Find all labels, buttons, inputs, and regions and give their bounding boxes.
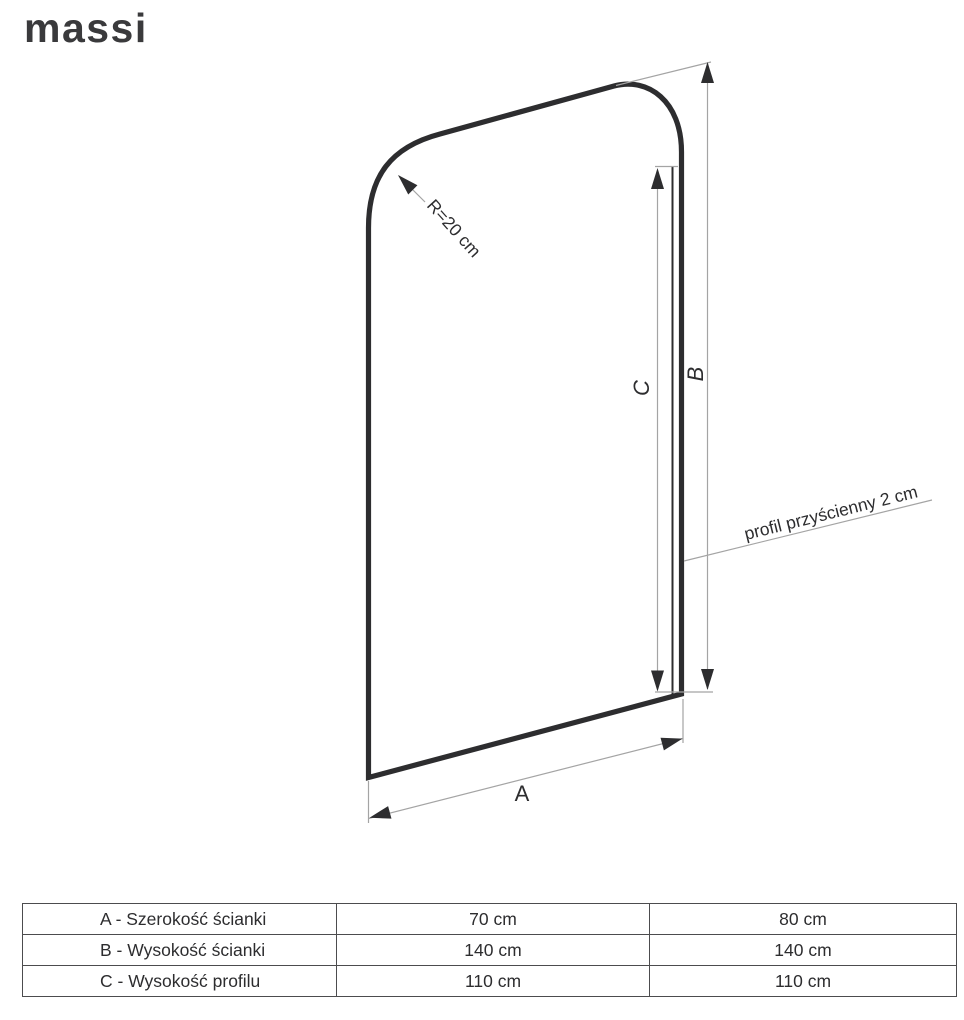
size-value-cell: 80 cm <box>650 904 957 935</box>
dimension-label-cell: C - Wysokość profilu <box>23 966 337 997</box>
dimension-label-cell: B - Wysokość ścianki <box>23 935 337 966</box>
wall-profile-annotation: profil przyścienny 2 cm <box>742 481 920 543</box>
table-row-b: B - Wysokość ścianki 140 cm 140 cm <box>23 935 957 966</box>
size-value-cell: 140 cm <box>650 935 957 966</box>
arrowheads <box>368 62 714 824</box>
dim-line-a <box>369 739 684 819</box>
size-value-cell: 140 cm <box>337 935 650 966</box>
shower-screen-technical-drawing: A B C R=20 cm profil przyścienny 2 cm <box>0 0 964 880</box>
size-value-cell: 70 cm <box>337 904 650 935</box>
dim-label-c: C <box>629 380 654 396</box>
radius-annotation: R=20 cm <box>423 195 485 261</box>
dimension-label-cell: A - Szerokość ścianki <box>23 904 337 935</box>
ext-line-b-top <box>616 62 711 86</box>
size-value-cell: 110 cm <box>650 966 957 997</box>
arrowhead-b-bottom-icon <box>701 669 714 690</box>
arrowhead-a-left-icon <box>368 806 392 824</box>
arrowhead-b-top-icon <box>701 62 714 83</box>
dim-label-a: A <box>515 781 530 806</box>
shower-panel-outline <box>369 84 682 777</box>
arrowhead-a-right-icon <box>661 732 685 750</box>
dimensions-table: A - Szerokość ścianki 70 cm 80 cm B - Wy… <box>22 903 957 997</box>
table-row-c: C - Wysokość profilu 110 cm 110 cm <box>23 966 957 997</box>
dimension-lines <box>369 62 933 823</box>
arrowhead-c-bottom-icon <box>651 671 664 692</box>
arrowhead-c-top-icon <box>651 168 664 189</box>
table-row-a: A - Szerokość ścianki 70 cm 80 cm <box>23 904 957 935</box>
size-value-cell: 110 cm <box>337 966 650 997</box>
dim-label-b: B <box>683 367 708 382</box>
